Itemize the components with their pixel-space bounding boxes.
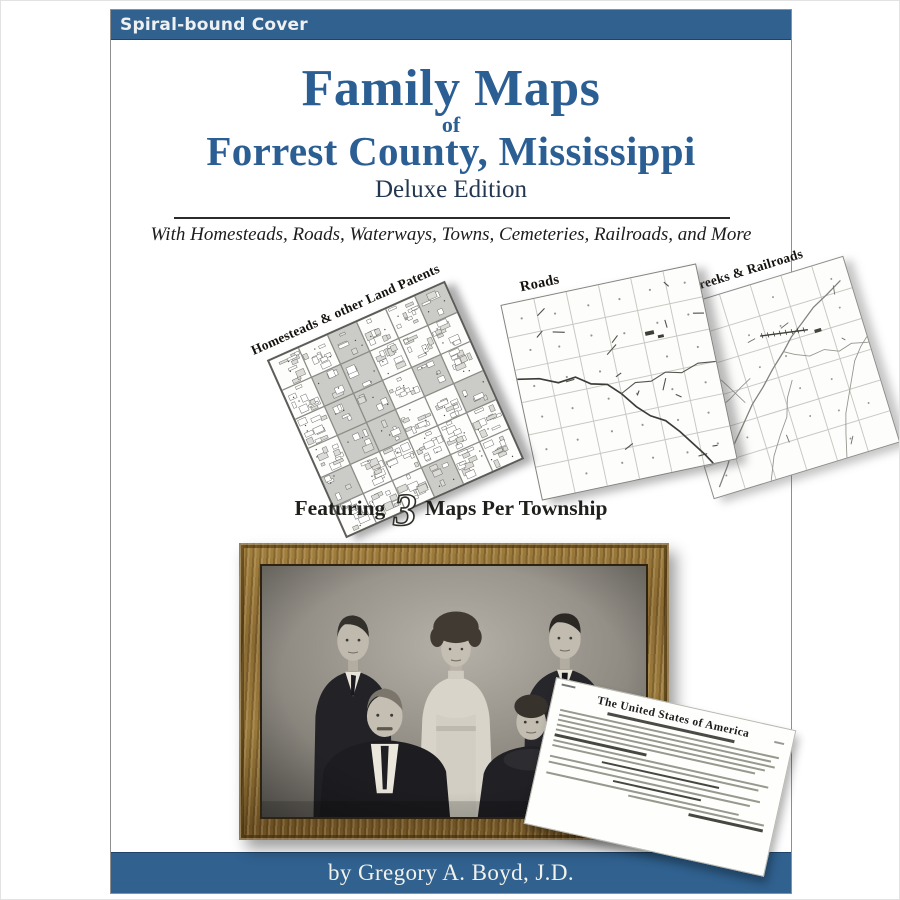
- title-main: Family Maps: [111, 62, 791, 116]
- binding-type-banner: Spiral-bound Cover: [111, 10, 791, 40]
- featuring-number: 3: [394, 500, 417, 520]
- map-roads: Roads: [500, 263, 737, 500]
- land-patent-document: The United States of America: [524, 677, 797, 877]
- roads-map-graphic: [502, 265, 737, 500]
- featuring-suffix: Maps Per Township: [425, 496, 607, 520]
- map-roads-label: Roads: [519, 271, 561, 296]
- book-cover-image: Spiral-bound Cover Family Maps of Forres…: [0, 0, 900, 900]
- byline-text: by Gregory A. Boyd, J.D.: [328, 860, 574, 886]
- cover-page: Spiral-bound Cover Family Maps of Forres…: [110, 9, 792, 894]
- featuring-prefix: Featuring: [295, 496, 386, 520]
- tagline: With Homesteads, Roads, Waterways, Towns…: [111, 224, 791, 246]
- title-edition: Deluxe Edition: [111, 174, 791, 206]
- divider-rule: [174, 217, 730, 219]
- featuring-line: Featuring 3 Maps Per Township: [111, 496, 791, 521]
- binding-type-label: Spiral-bound Cover: [120, 15, 308, 35]
- title-county: Forrest County, Mississippi: [111, 130, 791, 172]
- title-block: Family Maps of Forrest County, Mississip…: [111, 62, 791, 206]
